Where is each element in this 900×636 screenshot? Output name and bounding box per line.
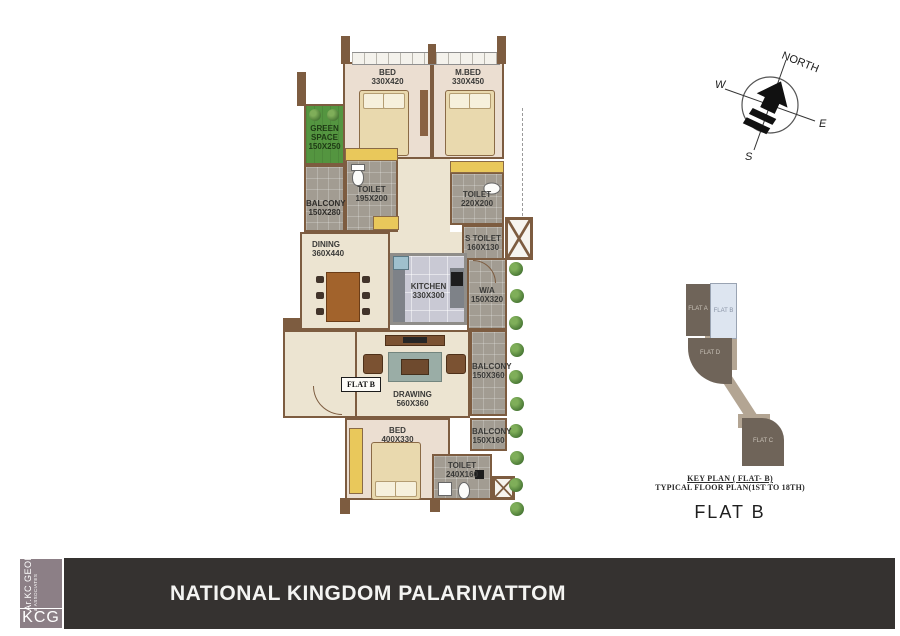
room-dims: 160X130 bbox=[464, 243, 502, 252]
keyplan-flat-c-label: FLAT C bbox=[742, 438, 784, 444]
room-dining: DINING 360X440 bbox=[300, 232, 390, 330]
boundary-dashed-line bbox=[522, 108, 523, 216]
room-dims: 150X160 bbox=[472, 436, 505, 445]
room-dims: 150X280 bbox=[306, 208, 343, 217]
vanity-counter bbox=[345, 148, 398, 161]
keyplan-flat-c: FLAT C bbox=[742, 418, 784, 466]
room-dims: 400X330 bbox=[347, 435, 448, 444]
compass-rose: NORTH W E S bbox=[713, 42, 831, 164]
room-green-space: GREEN SPACE 150X250 bbox=[304, 104, 345, 165]
page: BED 330X420 M.BED 330X450 GREEN SPACE bbox=[0, 0, 900, 636]
keyplan-flat-d: FLAT D bbox=[688, 338, 732, 384]
room-name: BALCONY bbox=[472, 362, 505, 371]
room-name: S TOILET bbox=[464, 234, 502, 243]
room-toilet-2: TOILET 220X200 bbox=[450, 172, 504, 225]
keyplan-flat-a: FLAT A bbox=[686, 284, 710, 336]
window-rail bbox=[352, 52, 500, 65]
room-balcony-1: BALCONY 150X280 bbox=[304, 165, 345, 232]
planter bbox=[509, 262, 523, 276]
room-dims: 150X360 bbox=[472, 371, 505, 380]
kitchen-sink bbox=[393, 256, 409, 270]
wall-stub bbox=[297, 72, 306, 106]
room-dims: 150X320 bbox=[469, 295, 505, 304]
room-label: TOILET 220X200 bbox=[452, 190, 502, 208]
chair bbox=[362, 308, 370, 315]
room-label: KITCHEN 330X300 bbox=[393, 282, 464, 300]
keyplan-flat-a-label: FLAT A bbox=[686, 306, 710, 312]
flat-b-tag-label: FLAT B bbox=[347, 380, 375, 389]
room-label: DRAWING 560X360 bbox=[357, 390, 468, 408]
pillow bbox=[395, 481, 417, 497]
room-label: M.BED 330X450 bbox=[434, 68, 502, 86]
room-label: BED 330X420 bbox=[345, 68, 430, 86]
room-name: W/A bbox=[469, 286, 505, 295]
tv bbox=[403, 337, 427, 343]
shrub bbox=[327, 109, 339, 121]
pillow bbox=[469, 93, 491, 109]
room-dims: 330X450 bbox=[434, 77, 502, 86]
footer-bar: NATIONAL KINGDOM PALARIVATTOM bbox=[18, 558, 895, 629]
room-label: TOILET 240X160 bbox=[434, 461, 490, 479]
room-dims: 360X440 bbox=[312, 249, 382, 258]
room-dims: 220X200 bbox=[452, 199, 502, 208]
keyplan-flat-d-label: FLAT D bbox=[688, 350, 732, 356]
room-bed-1: BED 330X420 bbox=[343, 62, 432, 159]
compass-south-label: S bbox=[745, 151, 753, 163]
compass-west-label: W bbox=[715, 79, 727, 91]
wall-stub bbox=[341, 36, 350, 64]
room-label: GREEN SPACE 150X250 bbox=[306, 124, 343, 151]
bed-furniture bbox=[445, 90, 495, 156]
room-master-bed: M.BED 330X450 bbox=[432, 62, 504, 159]
planter bbox=[509, 370, 523, 384]
room-label: W/A 150X320 bbox=[469, 286, 505, 304]
vanity-counter bbox=[450, 161, 504, 173]
room-name: GREEN SPACE bbox=[306, 124, 343, 142]
keyplan-caption-line2: TYPICAL FLOOR PLAN(1ST TO 18TH) bbox=[615, 483, 845, 492]
logo-firm-name: Ar.KC GEORGE bbox=[23, 561, 33, 611]
armchair bbox=[363, 354, 383, 374]
bed-furniture bbox=[359, 90, 409, 156]
compass-east-label: E bbox=[819, 118, 827, 130]
room-balcony-3: BALCONY 150X160 bbox=[470, 418, 507, 451]
room-label: TOILET 195X200 bbox=[347, 185, 396, 203]
room-dims: 330X300 bbox=[393, 291, 464, 300]
room-label: DINING 360X440 bbox=[304, 240, 382, 258]
keyplan-caption-line1: KEY PLAN ( FLAT- B) bbox=[615, 474, 845, 483]
room-name: TOILET bbox=[452, 190, 502, 199]
keyplan-caption: KEY PLAN ( FLAT- B) TYPICAL FLOOR PLAN(1… bbox=[615, 474, 845, 492]
chair bbox=[316, 276, 324, 283]
room-balcony-2: BALCONY 150X360 bbox=[470, 330, 507, 416]
bed-furniture bbox=[371, 442, 421, 500]
dining-table bbox=[326, 272, 360, 322]
key-plan: FLAT A FLAT B FLAT D FLAT C KEY PLAN ( F… bbox=[650, 278, 810, 530]
room-dims: 150X250 bbox=[306, 142, 343, 151]
planter bbox=[509, 478, 523, 492]
pillow bbox=[449, 93, 471, 109]
room-label: S TOILET 160X130 bbox=[464, 234, 502, 252]
toilet-tank bbox=[351, 164, 365, 171]
keyplan-flat-title: FLAT B bbox=[630, 502, 830, 523]
planter bbox=[510, 502, 524, 516]
compass-icon: NORTH W E S bbox=[713, 42, 831, 164]
room-dims: 330X420 bbox=[345, 77, 430, 86]
keyplan-flat-b-label: FLAT B bbox=[711, 308, 736, 314]
pillow bbox=[375, 481, 397, 497]
room-name: BED bbox=[345, 68, 430, 77]
pillow bbox=[363, 93, 385, 109]
keyplan-flat-b: FLAT B bbox=[710, 283, 737, 339]
flat-b-tag: FLAT B bbox=[341, 377, 381, 392]
compass-north-label: NORTH bbox=[780, 50, 821, 76]
room-label: BED 400X330 bbox=[347, 426, 448, 444]
project-title: NATIONAL KINGDOM PALARIVATTOM bbox=[170, 558, 566, 629]
room-name: BALCONY bbox=[306, 199, 343, 208]
shrub bbox=[309, 109, 321, 121]
room-drawing: DRAWING 560X360 bbox=[355, 330, 470, 418]
room-name: BALCONY bbox=[472, 427, 505, 436]
armchair bbox=[446, 354, 466, 374]
logo-firm-text: Ar.KC GEORGE & ASSOCIATES bbox=[23, 561, 38, 611]
wall-stub bbox=[283, 318, 300, 332]
wall-stub bbox=[340, 498, 350, 514]
washbasin bbox=[438, 482, 452, 496]
room-s-toilet: S TOILET 160X130 bbox=[462, 225, 504, 260]
floor-plan: BED 330X420 M.BED 330X450 GREEN SPACE bbox=[283, 32, 543, 518]
chair bbox=[316, 292, 324, 299]
planter bbox=[510, 289, 524, 303]
room-name: BED bbox=[347, 426, 448, 435]
x-mark-icon bbox=[508, 220, 530, 257]
coffee-table bbox=[401, 359, 429, 375]
vanity-counter bbox=[373, 216, 399, 230]
room-dims: 560X360 bbox=[357, 399, 468, 408]
planter bbox=[510, 397, 524, 411]
chair bbox=[316, 308, 324, 315]
room-toilet-3: TOILET 240X160 bbox=[432, 454, 492, 500]
chair bbox=[362, 292, 370, 299]
planter bbox=[510, 343, 524, 357]
logo-firm-suffix: & ASSOCIATES bbox=[33, 561, 38, 611]
room-kitchen: KITCHEN 330X300 bbox=[390, 253, 467, 325]
room-name: TOILET bbox=[347, 185, 396, 194]
planter bbox=[509, 316, 523, 330]
toilet-fixture bbox=[352, 169, 364, 186]
pillow bbox=[383, 93, 405, 109]
wall-stub bbox=[497, 36, 506, 64]
toilet-fixture bbox=[458, 482, 470, 499]
kcg-logo: Ar.KC GEORGE & ASSOCIATES KCG bbox=[18, 557, 64, 630]
room-dims: 240X160 bbox=[434, 470, 490, 479]
room-label: BALCONY 150X280 bbox=[306, 199, 343, 217]
wall-stub bbox=[428, 44, 436, 64]
room-name: KITCHEN bbox=[393, 282, 464, 291]
room-name: TOILET bbox=[434, 461, 490, 470]
logo-mark: KCG bbox=[20, 608, 62, 627]
room-label: BALCONY 150X360 bbox=[472, 362, 505, 380]
room-name: DINING bbox=[312, 240, 382, 249]
chair bbox=[362, 276, 370, 283]
room-label: BALCONY 150X160 bbox=[472, 427, 505, 445]
room-dims: 195X200 bbox=[347, 194, 396, 203]
room-name: M.BED bbox=[434, 68, 502, 77]
shaft-box bbox=[505, 217, 533, 260]
planter bbox=[510, 451, 524, 465]
wall-stub bbox=[430, 498, 440, 512]
side-table bbox=[420, 90, 428, 136]
corridor bbox=[390, 232, 467, 255]
